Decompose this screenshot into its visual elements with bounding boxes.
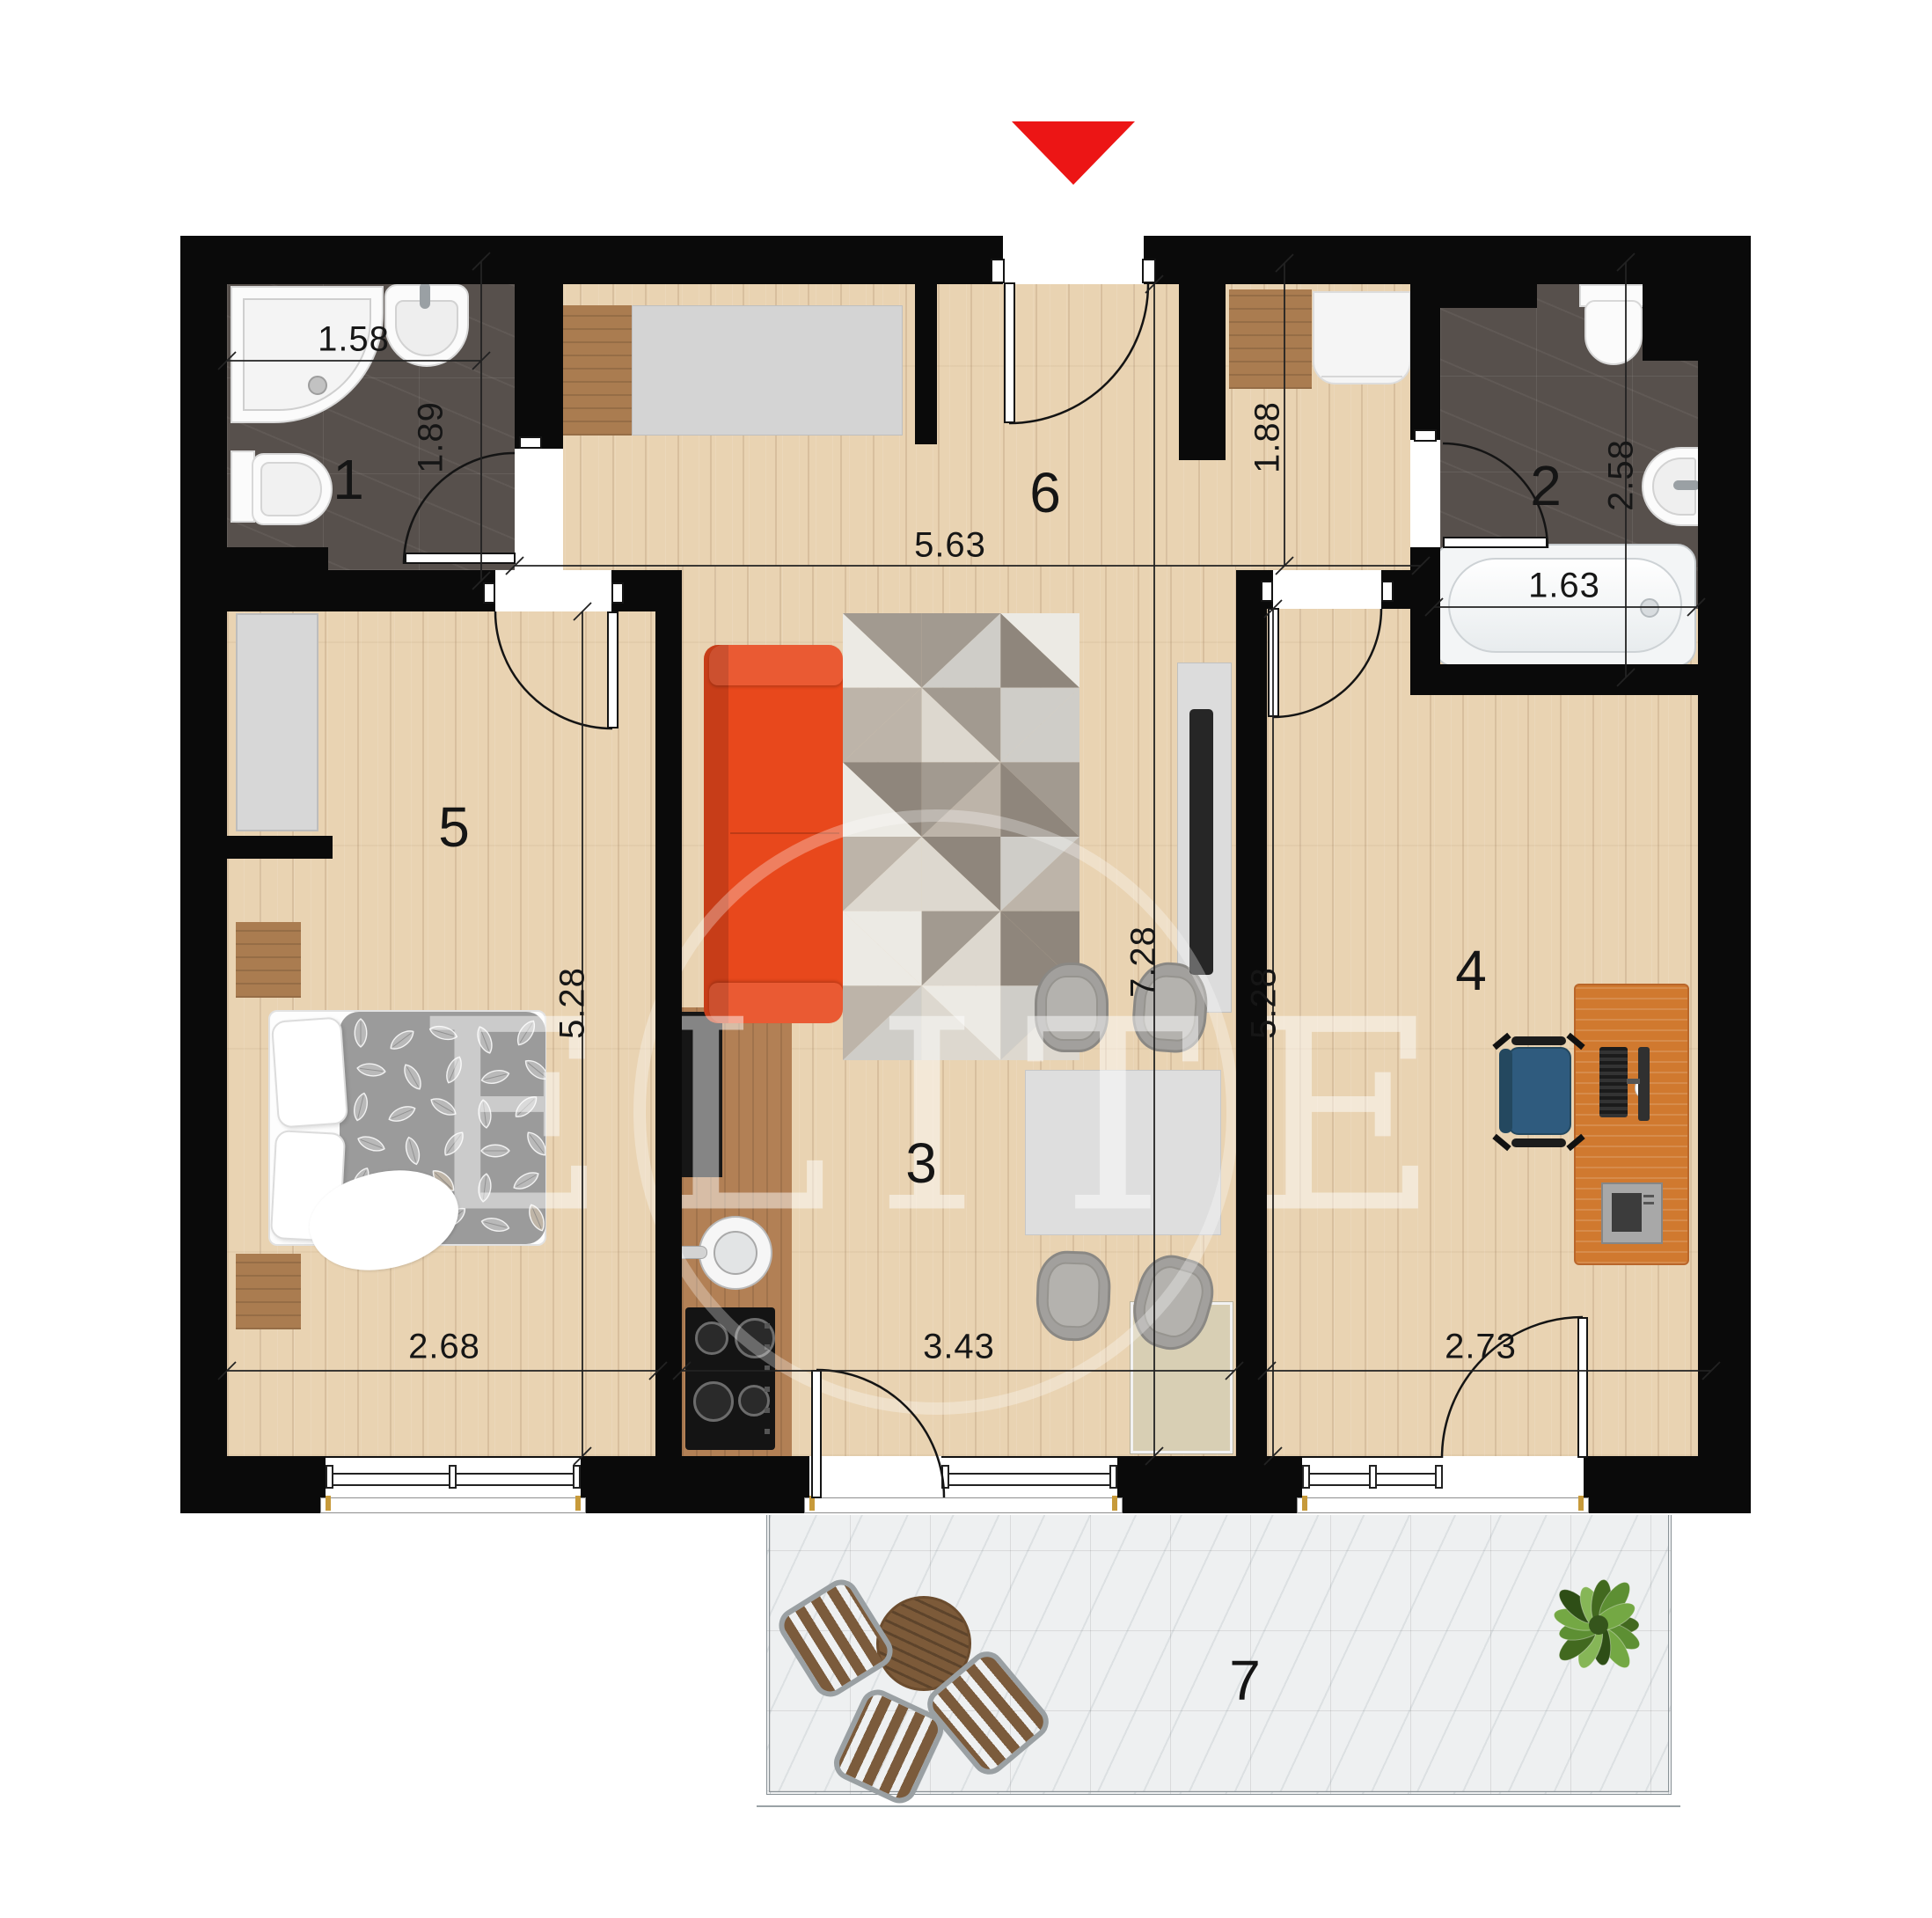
living-balcony-door-leaf (811, 1370, 822, 1498)
wall (180, 1456, 326, 1513)
room-label-office: 4 (1455, 938, 1487, 1003)
dim-hall-width: 5.63 (914, 526, 986, 566)
door-jamb (1381, 581, 1394, 602)
window-sill (320, 1497, 586, 1513)
wall (1698, 236, 1751, 1513)
bedroom-door-leaf (607, 611, 618, 728)
dim-hall-depth: 1.88 (1248, 401, 1288, 473)
door-jamb (1414, 429, 1437, 442)
door-jamb (611, 582, 624, 604)
wall (1584, 1456, 1751, 1513)
nightstand (236, 1254, 301, 1329)
toilet2-bowl (1584, 300, 1643, 365)
sill-mark (1302, 1496, 1307, 1511)
office-balcony-door-opening (1443, 1456, 1584, 1497)
door-jamb (519, 436, 542, 449)
sill-mark (1578, 1496, 1584, 1511)
toilet1-bowl (252, 453, 333, 525)
door-jamb (1142, 259, 1156, 283)
wall-stub (227, 836, 333, 859)
room-label-bathroom2: 2 (1530, 453, 1562, 518)
dim-bath1-depth: 1.89 (412, 401, 451, 473)
door-jamb (991, 259, 1005, 283)
bathroom1-opening (515, 449, 563, 570)
wall (1117, 1456, 1302, 1513)
entry-appliance (1313, 291, 1411, 384)
dim-office-depth: 5.28 (1245, 967, 1284, 1039)
wall (180, 236, 1003, 284)
entry-cabinet (1229, 289, 1312, 389)
room-label-balcony: 7 (1229, 1648, 1261, 1713)
dim-bedroom-depth: 5.28 (553, 967, 593, 1039)
wall (180, 236, 227, 1513)
door-jamb (1261, 581, 1273, 602)
dim-bath1-width: 1.58 (318, 320, 390, 360)
tv (1189, 709, 1213, 975)
office-door-leaf (1268, 608, 1279, 717)
dim-office-width: 2.73 (1445, 1328, 1517, 1367)
bathroom1-sink (384, 284, 469, 367)
wall (1643, 284, 1698, 361)
wall (227, 547, 328, 572)
bedroom-window (326, 1456, 581, 1497)
keyboard (1599, 1047, 1628, 1117)
sill-mark (575, 1496, 581, 1511)
monitor (1638, 1047, 1650, 1121)
pillow (271, 1016, 348, 1128)
faucet-icon (1673, 480, 1700, 490)
bedroom-opening (495, 570, 611, 611)
office-chair (1499, 1040, 1578, 1144)
sill-mark (326, 1496, 331, 1511)
wall (180, 570, 495, 611)
watermark-ring (633, 809, 1239, 1415)
sill-mark (1112, 1496, 1117, 1511)
tub-drain (1640, 598, 1659, 618)
room-label-living: 3 (905, 1131, 937, 1196)
dim-bath2-depth: 2.58 (1602, 439, 1642, 511)
office-balcony-door-leaf (1577, 1317, 1588, 1458)
wall (915, 284, 937, 444)
bathroom2-door-leaf (1443, 537, 1548, 548)
wall (581, 1456, 809, 1513)
room-label-hall: 6 (1029, 460, 1061, 525)
wall (1410, 284, 1440, 440)
office-window (1302, 1456, 1443, 1497)
wall (515, 284, 563, 449)
bedroom-wardrobe (236, 613, 318, 831)
wall (655, 570, 682, 1456)
entrance-door-leaf (1004, 282, 1015, 423)
entrance-arrow-icon (1012, 121, 1135, 185)
monitor-stand (1627, 1079, 1640, 1084)
entrance-opening (1003, 236, 1144, 284)
hall-wardrobe (632, 305, 903, 436)
dim-bedroom-width: 2.68 (408, 1328, 480, 1367)
window-sill (804, 1497, 1123, 1513)
living-window (941, 1456, 1117, 1497)
dim-total-depth: 7.28 (1124, 926, 1164, 998)
nightstand (236, 922, 301, 998)
floor-plan: ELITE (0, 0, 1932, 1918)
room-label-bedroom: 5 (438, 794, 470, 860)
room-label-bathroom1: 1 (333, 447, 364, 512)
bathroom1-door-leaf (405, 553, 516, 564)
bathroom2-opening (1410, 440, 1440, 547)
office-opening (1273, 570, 1381, 609)
window-sill (1297, 1497, 1589, 1513)
wall (1144, 236, 1751, 284)
faucet-icon (420, 282, 430, 309)
shower-drain (308, 376, 327, 395)
door-jamb (483, 582, 495, 604)
dim-living-width: 3.43 (923, 1328, 995, 1367)
living-balcony-door-opening (809, 1456, 941, 1497)
wall (1440, 284, 1537, 308)
wall (1410, 664, 1751, 695)
pc-tower (1601, 1182, 1663, 1244)
wall (1179, 284, 1226, 460)
dim-tub-width: 1.63 (1528, 567, 1600, 606)
